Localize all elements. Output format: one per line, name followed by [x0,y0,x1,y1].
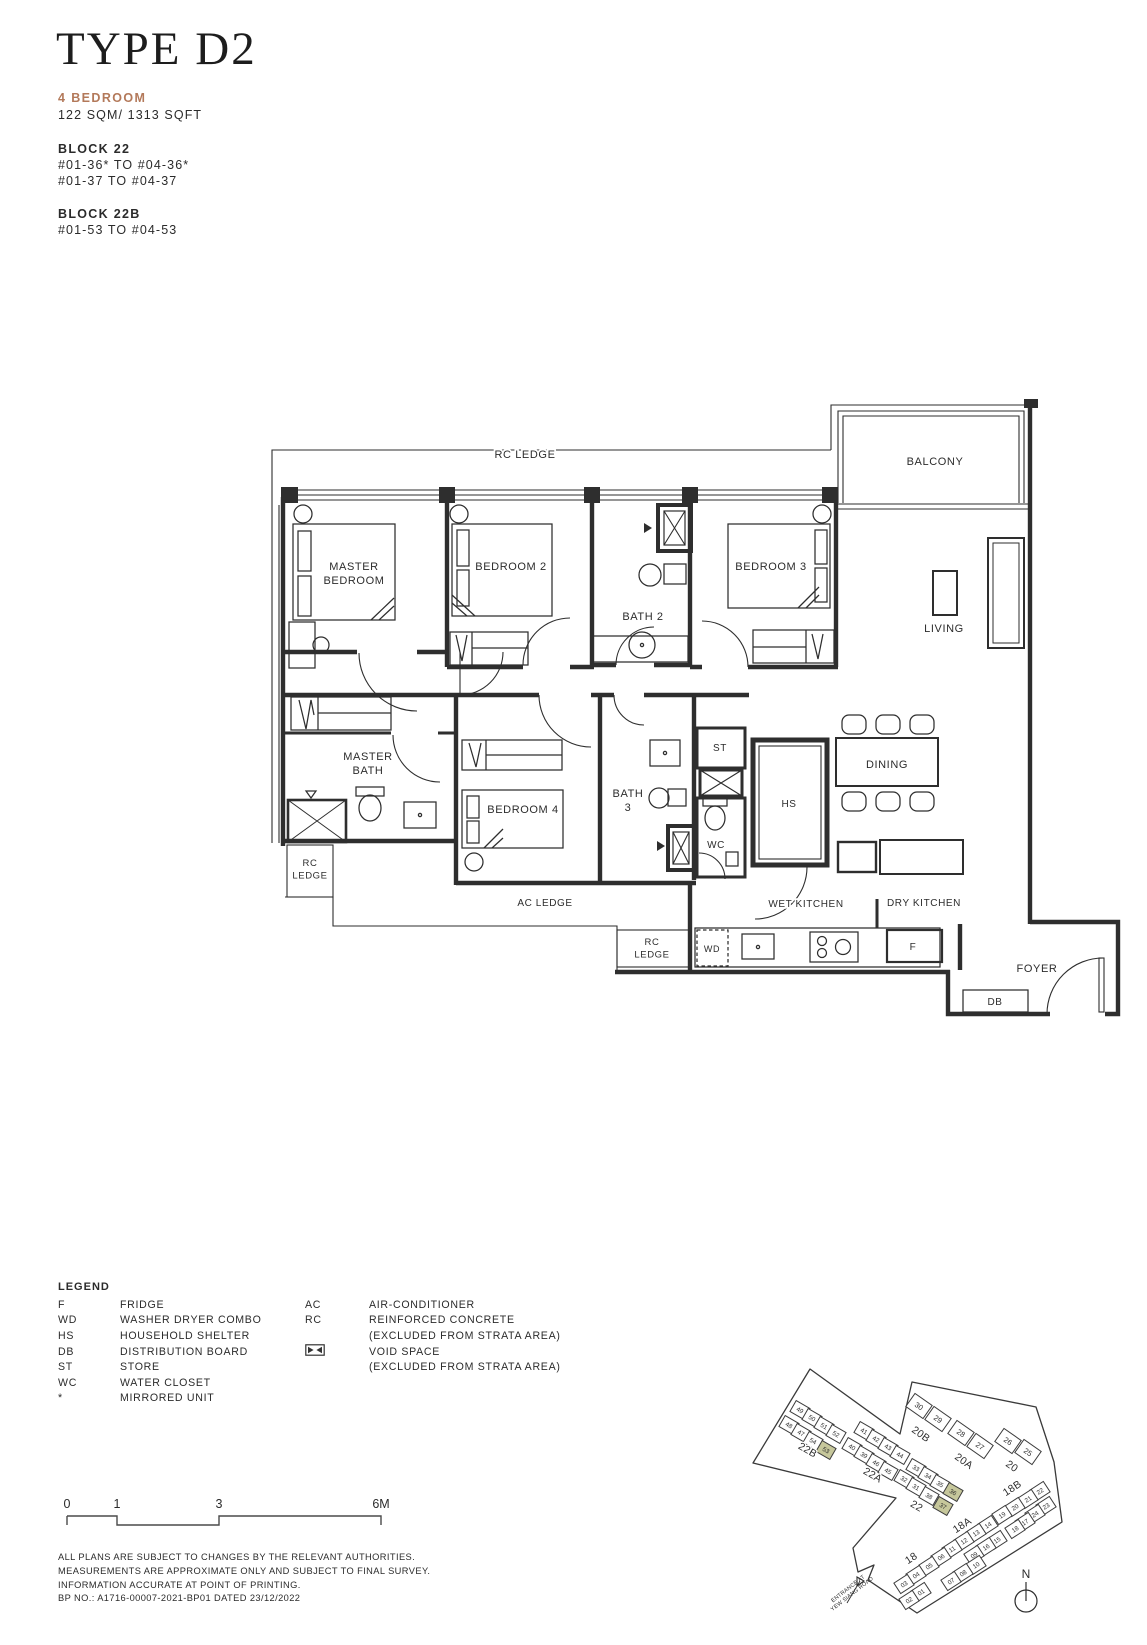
legend-abbr: * [58,1392,120,1404]
room-label-dry-kitchen-19: DRY KITCHEN [887,898,961,909]
wall-piers [281,399,1038,503]
legend-abbr: WC [58,1377,120,1389]
scale-tick-6M: 6M [372,1497,389,1511]
room-label-bath-2-4: BATH 2 [622,611,663,623]
room-label-master-bedroom-2: MASTERBEDROOM [323,561,384,587]
walls-layer [283,405,1118,1014]
legend-row: (EXCLUDED FROM STRATA AREA) [305,1328,635,1344]
room-label-ac-ledge-15: AC LEDGE [517,898,572,909]
block-name: BLOCK 22B [58,206,189,222]
room-label-hs-12: HS [781,799,796,810]
legend-row: DBDISTRIBUTION BOARD [58,1344,308,1360]
legend-desc: (EXCLUDED FROM STRATA AREA) [369,1361,561,1373]
room-label-master-bath-7: MASTERBATH [343,751,392,777]
legend-desc: MIRRORED UNIT [120,1392,214,1404]
unit-type-label: 4 BEDROOM [58,91,146,105]
entrance-label: ENTRANCE ATYEW SIANG ROAD [826,1571,875,1613]
disclaimer-line: BP NO.: A1716-00007-2021-BP01 DATED 23/1… [58,1592,430,1606]
void-shaft-cross [700,770,742,796]
scale-tick-3: 3 [216,1497,223,1511]
room-label-dining-13: DINING [866,759,908,771]
legend-column-1: FFRIDGEWDWASHER DRYER COMBOHSHOUSEHOLD S… [58,1297,308,1406]
dry-kitchen-counter-icon [880,840,963,874]
north-label: N [1022,1567,1031,1581]
room-label-db-21: DB [987,997,1002,1008]
room-label-bedroom-3-5: BEDROOM 3 [735,561,806,573]
room-label-foyer-22: FOYER [1017,963,1058,975]
bath3-toilet-icon [649,788,669,808]
site-map-annotations: ENTRANCE ATYEW SIANG ROAD [826,1571,875,1613]
wc-toilet-icon [705,806,725,830]
legend-abbr: F [58,1299,120,1311]
legend-desc: WASHER DRYER COMBO [120,1314,262,1326]
bedroom4-bed-icon [462,790,563,848]
block-group: BLOCK 22#01-36* TO #04-36*#01-37 TO #04-… [58,141,189,189]
room-label-bath-3-9: BATH3 [613,788,644,814]
legend-desc: FRIDGE [120,1299,164,1311]
bath3-sink-icon [650,740,680,766]
site-map-block-20B: 20B [909,1424,932,1445]
room-label-st-10: ST [713,743,727,754]
legend-desc: REINFORCED CONCRETE [369,1314,515,1326]
site-map-block-20: 20 [1003,1458,1020,1475]
legend-abbr: RC [305,1314,369,1326]
legend: LEGEND FFRIDGEWDWASHER DRYER COMBOHSHOUS… [58,1281,678,1297]
scale-bar: 0136M [55,1492,400,1534]
room-label-balcony-1: BALCONY [907,456,964,468]
room-label-wd-17: WD [704,944,720,954]
kitchen-sink-icon [742,934,774,959]
legend-row: STSTORE [58,1359,308,1375]
page-title: TYPE D2 [56,22,257,76]
unit-area-label: 122 SQM/ 1313 SQFT [58,108,202,122]
scale-bar-labels: 0136M [64,1497,390,1511]
room-label-rc-ledge-0: RC LEDGE [494,449,555,461]
legend-desc: HOUSEHOLD SHELTER [120,1330,250,1342]
room-label-wc-11: WC [707,840,725,851]
north-indicator: N [1015,1567,1037,1612]
room-label-bedroom-4-8: BEDROOM 4 [487,804,558,816]
legend-desc: VOID SPACE [369,1346,440,1358]
master-sink-icon [404,802,436,828]
legend-column-2: ACAIR-CONDITIONERRCREINFORCED CONCRETE(E… [305,1297,635,1375]
scale-tick-1: 1 [114,1497,121,1511]
room-label-rc-ledge-16: RCLEDGE [634,937,669,961]
bath2-toilet-icon [639,564,661,586]
legend-abbr: ST [58,1361,120,1373]
block-group: BLOCK 22B#01-53 TO #04-53 [58,206,189,238]
legend-desc: AIR-CONDITIONER [369,1299,475,1311]
legend-abbr: WD [58,1314,120,1326]
master-toilet-icon [359,795,381,821]
room-label-f-20: F [910,942,917,953]
legend-abbr: AC [305,1299,369,1311]
legend-row: FFRIDGE [58,1297,308,1313]
room-labels-layer: RC LEDGEBALCONYMASTERBEDROOMBEDROOM 2BAT… [292,449,1057,1008]
disclaimer: ALL PLANS ARE SUBJECT TO CHANGES BY THE … [58,1551,430,1606]
legend-row: *MIRRORED UNIT [58,1391,308,1407]
disclaimer-line: INFORMATION ACCURATE AT POINT OF PRINTIN… [58,1579,430,1593]
site-map-block-22: 22 [908,1498,925,1515]
doors-layer [359,618,1104,1014]
block-name: BLOCK 22 [58,141,189,157]
floor-plan-page: TYPE D2 4 BEDROOM 122 SQM/ 1313 SQFT BLO… [0,0,1147,1645]
legend-row: WDWASHER DRYER COMBO [58,1313,308,1329]
legend-desc: DISTRIBUTION BOARD [120,1346,248,1358]
legend-row: WCWATER CLOSET [58,1375,308,1391]
disclaimer-line: ALL PLANS ARE SUBJECT TO CHANGES BY THE … [58,1551,430,1565]
header-blocks: BLOCK 22#01-36* TO #04-36*#01-37 TO #04-… [58,141,189,255]
scale-tick-0: 0 [64,1497,71,1511]
site-map-block-20A: 20A [952,1451,975,1472]
legend-row: HSHOUSEHOLD SHELTER [58,1328,308,1344]
room-label-bedroom-2-3: BEDROOM 2 [475,561,546,573]
legend-desc: (EXCLUDED FROM STRATA AREA) [369,1330,561,1342]
legend-row: ACAIR-CONDITIONER [305,1297,635,1313]
block-stack-line: #01-36* TO #04-36* [58,157,189,173]
legend-desc: WATER CLOSET [120,1377,211,1389]
block-stack-line: #01-37 TO #04-37 [58,173,189,189]
legend-row: RCREINFORCED CONCRETE [305,1313,635,1329]
bath2-shaft [644,505,691,551]
bath3-shaft [657,826,694,870]
legend-desc: STORE [120,1361,160,1373]
scale-bar-line [67,1516,381,1525]
room-label-rc-ledge-14: RCLEDGE [292,858,327,882]
site-map-block-18B: 18B [1001,1478,1024,1499]
room-label-wet-kitchen-18: WET KITCHEN [768,899,843,910]
room-label-living-6: LIVING [924,623,964,635]
void-space-icon [305,1344,369,1359]
legend-row: (EXCLUDED FROM STRATA AREA) [305,1359,635,1375]
legend-heading: LEGEND [58,1281,678,1293]
site-map: 4950515248475453414243444039464533343536… [738,1352,1130,1642]
block-stack-line: #01-53 TO #04-53 [58,222,189,238]
legend-abbr: HS [58,1330,120,1342]
floor-plan-drawing: RC LEDGEBALCONYMASTERBEDROOMBEDROOM 2BAT… [255,375,1130,1025]
legend-abbr: DB [58,1346,120,1358]
coffee-table-icon [933,571,957,615]
ledge-outline-layer [272,405,1028,970]
legend-row: VOID SPACE [305,1344,635,1360]
disclaimer-line: MEASUREMENTS ARE APPROXIMATE ONLY AND SU… [58,1565,430,1579]
site-map-block-18: 18 [903,1550,920,1567]
